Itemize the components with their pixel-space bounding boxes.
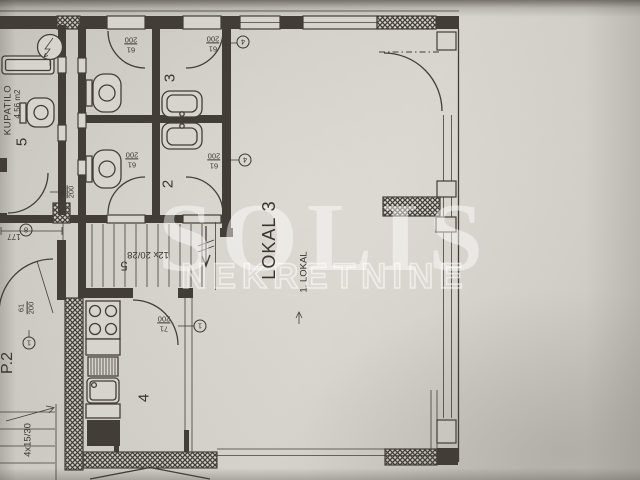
sink-icon [162, 91, 202, 117]
door-height: 200 [158, 314, 171, 324]
floorplan-linework [0, 0, 640, 480]
stair-number-main: 5 [120, 260, 127, 273]
room-number-4: 4 [137, 394, 152, 402]
room-label-p2: P.2 [0, 352, 16, 374]
door-size-tag: 61 200 [208, 151, 221, 170]
toilet-icon [20, 98, 54, 127]
door-height: 200 [207, 34, 220, 44]
lokal-arrow-icon [296, 312, 302, 324]
door-marker: 1 [194, 320, 207, 333]
room-sublabel-lokal: 1. LOKAL [299, 251, 309, 292]
door-size-tag: 61 200 [125, 35, 138, 54]
door-size-tag: 61 200 [58, 186, 77, 199]
stair-label-main: 12x 20/28 [127, 249, 169, 259]
door-marker: 4 [239, 154, 252, 167]
door-marker: 1 [23, 337, 36, 350]
room-label-lokal3: LOKAL 3 [260, 200, 278, 279]
door-size-tag: 71 200 [158, 314, 171, 333]
door-width: 61 [210, 161, 218, 170]
room-area-kupatilo: 4.56 m2 [14, 90, 22, 119]
bottom-walls [83, 430, 458, 468]
door-height: 200 [208, 151, 221, 161]
door-marker: 4 [237, 36, 250, 49]
dimension-177: 177 [7, 232, 20, 240]
door-width: 61 [128, 160, 136, 169]
kitchen-counter [86, 301, 120, 446]
right-window-wall [383, 29, 459, 462]
door-width: 61 [127, 45, 135, 54]
door-width: 61 [18, 304, 27, 312]
toilet-icon [86, 150, 121, 188]
elevator-shaft [90, 468, 210, 480]
room-number-5: 5 [15, 138, 30, 146]
door-width: 61 [209, 44, 217, 53]
room-number-3: 3 [163, 74, 178, 82]
door-height: 200 [125, 35, 138, 45]
toilet-icon [86, 74, 121, 112]
door-size-tag: 61 200 [126, 150, 139, 169]
door-width: 71 [160, 324, 168, 333]
stair-label-small: 4x15/30 [23, 423, 33, 457]
door-height: 200 [126, 150, 139, 160]
room-number-2: 2 [161, 180, 176, 188]
door-size-tag: 61 200 [18, 302, 37, 315]
door-height: 200 [66, 186, 76, 199]
floorplan-photo: SOLIS NEKRETNINE KUPATILO 4.56 m2 5 3 2 … [0, 0, 640, 480]
door-marker: 8 [20, 224, 33, 237]
door-height: 200 [26, 302, 36, 315]
room-label-kupatilo: KUPATILO [3, 85, 13, 135]
sink-icon [162, 123, 202, 149]
door-width: 61 [58, 188, 67, 196]
door-size-tag: 61 200 [207, 34, 220, 53]
